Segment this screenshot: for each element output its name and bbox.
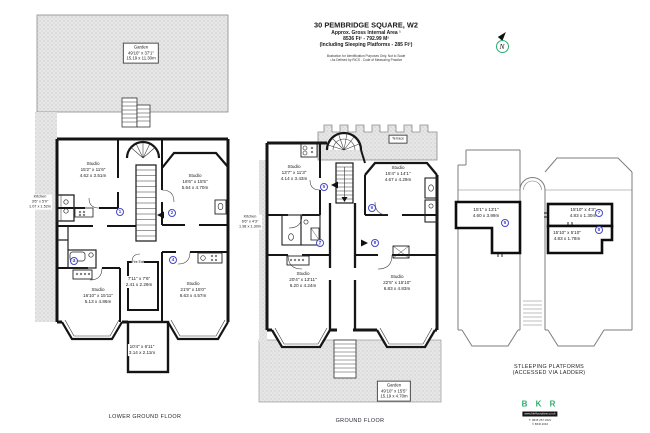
room-label-studio-5: Studio 13'7" x 11'3" 4.14 x 3.43m <box>280 164 309 182</box>
logo-copyright: © BKR 2016 <box>532 422 548 426</box>
unit-badge-4: 4 <box>169 256 177 264</box>
unit-badge-3: 3 <box>70 257 78 265</box>
lower-ground-floor-title: LOWER GROUND FLOOR <box>109 414 182 420</box>
unit-badge-5: 5 <box>320 183 328 191</box>
room-label-studio-1: Studio 15'2" x 11'6" 4.62 x 3.51m <box>79 161 108 179</box>
header-including: (Including Sleeping Platforms - 285 Ft²) <box>320 42 413 48</box>
floorplan-page: 30 PEMBRIDGE SQUARE, W2 Approx. Gross In… <box>0 0 650 433</box>
logo-phone: T: 0845 257 0321 <box>529 418 551 422</box>
ground-plan-drawing <box>258 118 443 418</box>
room-label-studio-4: Studio 21'9" x 15'0" 6.63 x 4.57m <box>179 281 208 299</box>
room-label-studio-6: Studio 15'4" x 14'1" 4.67 x 4.29m <box>384 165 413 183</box>
unit-badge-7: 7 <box>316 239 324 247</box>
garden-metric: 15.19 x 11.30m <box>126 56 155 62</box>
unit-badge-8: 8 <box>371 239 379 247</box>
lower-garden-label: Garden 49'10" x 37'1" 15.19 x 11.30m <box>123 43 159 64</box>
compass-icon: N <box>496 40 509 53</box>
room-label-studio-8: Studio 22'5" x 15'10" 6.83 x 4.83m <box>382 274 412 292</box>
fire-exit-label: Fire Exit <box>132 260 144 264</box>
compass-north-label: N <box>499 42 504 51</box>
ground-garden-label: Garden 49'10" x 15'5" 15.19 x 4.70m <box>377 381 411 402</box>
unit-badge-platform-1: 5 <box>501 219 509 227</box>
platform-label-2: 15'10" x 4'3" 4.83 x 1.30m <box>569 207 598 219</box>
platforms-title-line1: STLEEPING PLATFORMS <box>514 364 584 370</box>
unit-badge-6: 6 <box>368 204 376 212</box>
ground-floor-title: GROUND FLOOR <box>336 418 385 424</box>
room-label-studio-2: Studio 18'6" x 15'5" 5.64 x 4.70m <box>181 173 210 191</box>
room-label-small-lg: 7'11" x 7'6" 2.41 x 2.29m <box>125 276 154 288</box>
platform-label-1: 15'1" x 13'1" 4.60 x 3.99m <box>472 207 501 219</box>
platform-label-3: 15'10" x 5'10" 4.83 x 1.78m <box>552 230 582 242</box>
room-label-studio-3: Studio 16'10" x 15'11" 5.13 x 4.86m <box>82 287 114 305</box>
unit-badge-platform-3: 8 <box>595 226 603 234</box>
unit-badge-platform-2: 7 <box>595 209 603 217</box>
logo-website: www.bkrfloorplans.co.uk <box>522 411 557 416</box>
bkr-logo: B K R <box>522 400 559 409</box>
header-disclaimer-2: ¹ As Defined by RICS - Code of Measuring… <box>330 58 402 62</box>
room-label-kitchen-lg: Kitchen 3'6" x 5'0" 1.07 x 1.52m <box>28 195 52 210</box>
terrace-label: Terrace <box>389 135 408 144</box>
page-title: 30 PEMBRIDGE SQUARE, W2 <box>314 21 418 30</box>
unit-badge-2: 2 <box>168 209 176 217</box>
unit-badge-1: 1 <box>116 208 124 216</box>
room-label-studio-7: Studio 20'4" x 13'11" 6.20 x 4.24m <box>288 271 317 289</box>
room-label-kitchen-gf: Kitchen 6'6" x 4'3" 1.98 x 1.30m <box>238 215 262 230</box>
room-label-vault-lg: 10'4" x 6'11" 3.14 x 2.11m <box>128 344 156 356</box>
platforms-outline <box>458 150 632 346</box>
platforms-title-line2: (ACCESSED VIA LADDER) <box>513 370 586 376</box>
platforms-plan-drawing <box>450 135 640 360</box>
